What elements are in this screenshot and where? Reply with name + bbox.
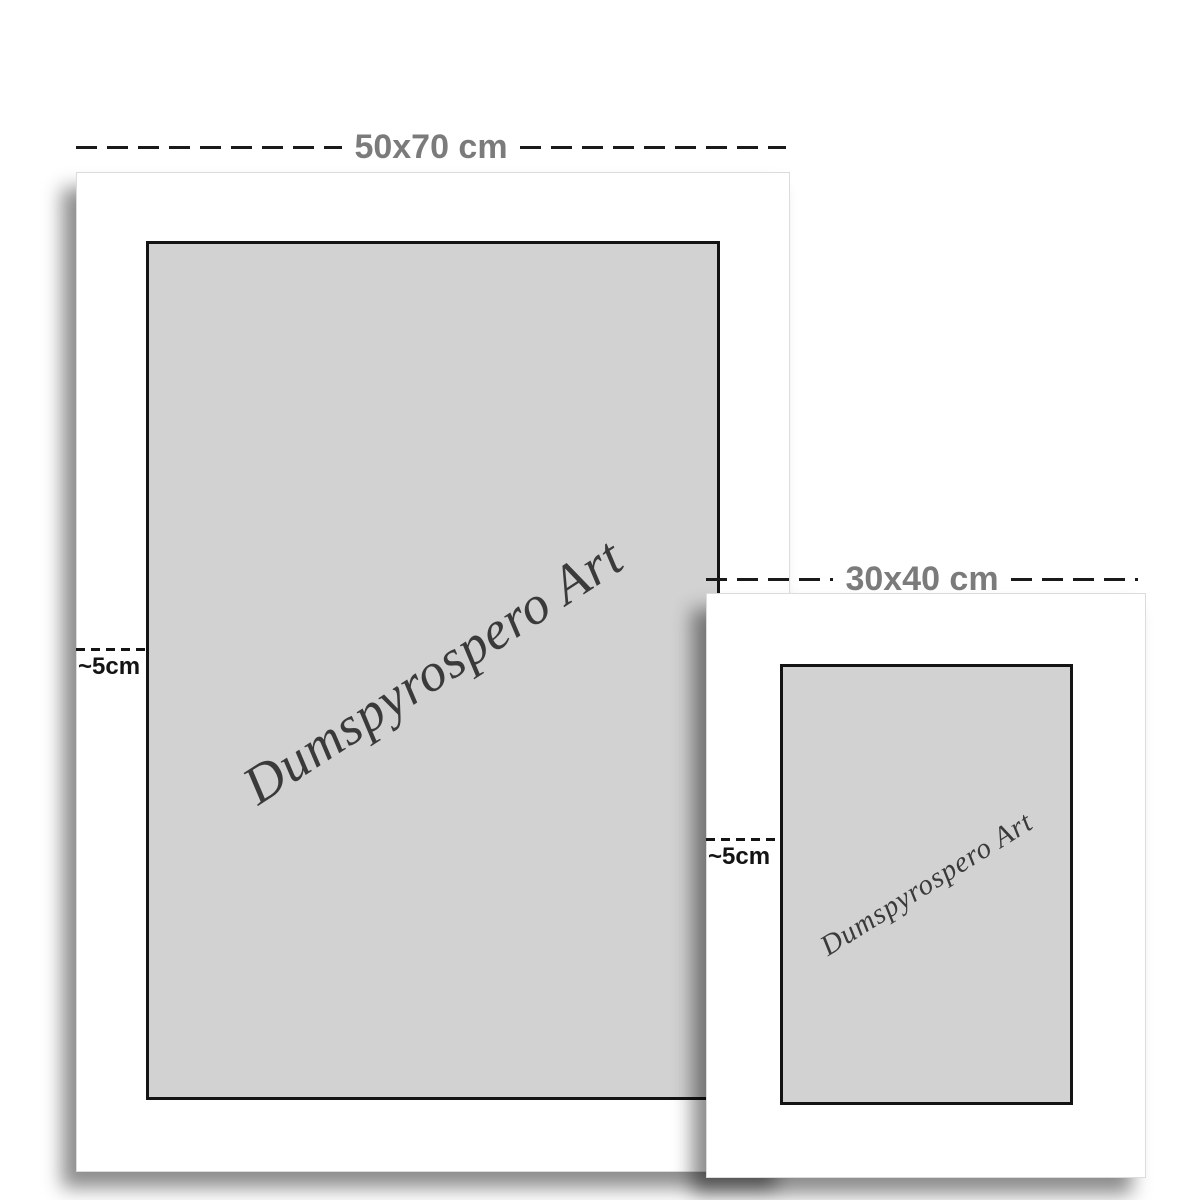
dash-segment-right-30x40 xyxy=(1011,578,1138,581)
poster-size-comparison-canvas: Dumspyrospero Art Dumspyrospero Art 50x7… xyxy=(0,0,1200,1200)
dimension-line-50x70: 50x70 cm xyxy=(76,127,786,167)
dash-segment-left-30x40 xyxy=(706,578,833,581)
poster-small: Dumspyrospero Art xyxy=(706,593,1146,1178)
size-label-50x70: 50x70 cm xyxy=(342,127,519,167)
artwork-area-large: Dumspyrospero Art xyxy=(146,241,720,1100)
size-label-30x40: 30x40 cm xyxy=(833,559,1010,599)
artwork-area-small: Dumspyrospero Art xyxy=(780,664,1073,1105)
dash-segment-right-50x70 xyxy=(520,146,786,149)
margin-dash-large xyxy=(76,648,147,651)
margin-label-small: ~5cm xyxy=(708,845,770,869)
brand-script-text-large: Dumspyrospero Art xyxy=(232,525,634,816)
brand-script-text-small: Dumspyrospero Art xyxy=(814,806,1038,963)
margin-dash-small xyxy=(706,838,779,841)
dimension-line-30x40: 30x40 cm xyxy=(706,559,1138,599)
dash-segment-left-50x70 xyxy=(76,146,342,149)
margin-label-large: ~5cm xyxy=(78,655,140,679)
poster-large: Dumspyrospero Art xyxy=(76,172,790,1172)
